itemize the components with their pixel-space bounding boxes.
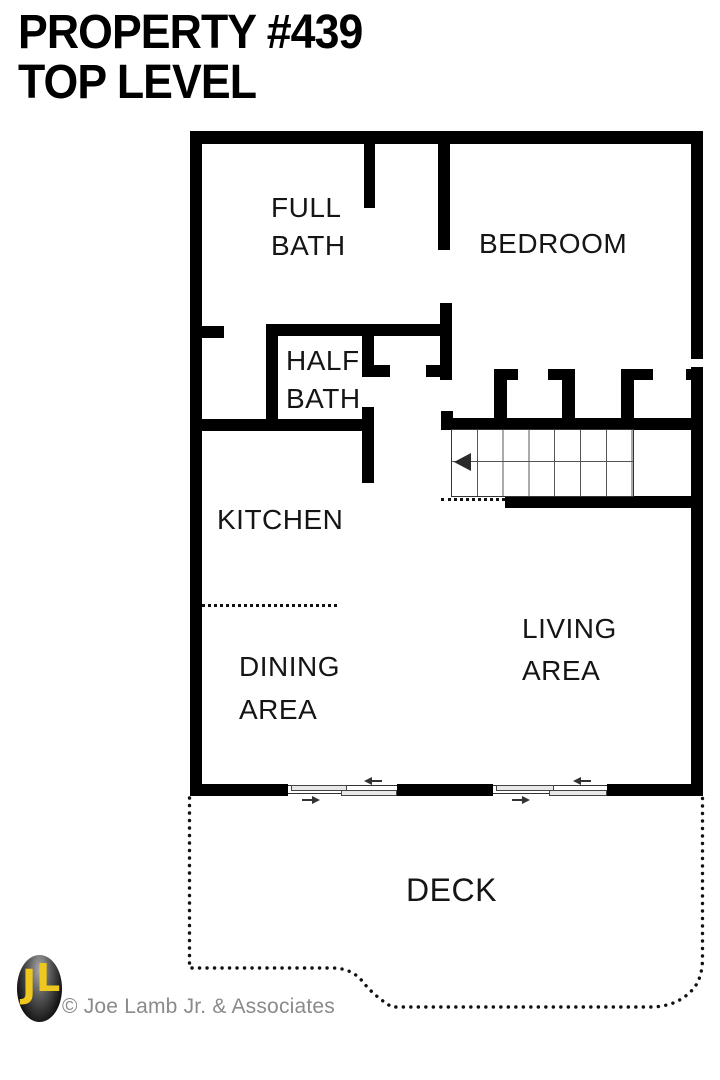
wall-bottom-right <box>607 784 703 796</box>
kitchen-dining-divider <box>202 604 337 607</box>
staircase <box>451 429 634 497</box>
room-label-bedroom: BEDROOM <box>479 225 627 263</box>
sliding-door-dining-panel-2 <box>341 790 397 796</box>
wall-kitchen-divider <box>362 407 374 483</box>
room-label-dining: DINING AREA <box>239 645 340 731</box>
room-label-living: LIVING AREA <box>522 608 617 692</box>
sliding-door-living-arrow-upper <box>577 780 591 782</box>
company-logo: J L <box>17 955 62 1022</box>
sliding-door-dining-arrow-upper <box>368 780 382 782</box>
room-label-living-line2: AREA <box>522 650 617 692</box>
room-label-kitchen-line1: KITCHEN <box>217 501 343 539</box>
room-label-living-line1: LIVING <box>522 608 617 650</box>
sliding-door-dining-panel-1 <box>291 785 347 791</box>
wall-halfbath-right-foot <box>362 365 390 377</box>
floorplan-page: PROPERTY #439 TOP LEVEL <box>0 0 720 1080</box>
sliding-door-living-panel-2 <box>549 790 607 796</box>
room-label-deck: DECK <box>406 871 497 909</box>
page-title-line2: TOP LEVEL <box>18 58 362 108</box>
room-label-bedroom-line1: BEDROOM <box>479 225 627 263</box>
stairs-dotted-line <box>441 498 505 501</box>
room-label-full-bath-line2: BATH <box>271 227 346 265</box>
wall-living-top <box>505 496 703 508</box>
wall-hall-stub-left <box>202 326 224 338</box>
closet-jamb-c-leg <box>621 369 634 418</box>
wall-left <box>190 131 202 796</box>
room-label-full-bath-line1: FULL <box>271 189 346 227</box>
wall-right-lower <box>691 367 703 796</box>
stairs-direction-arrow-icon <box>454 453 471 471</box>
wall-halfbath-bottom <box>190 419 373 431</box>
closet-jamb-d-cap <box>686 369 703 380</box>
wall-bottom-middle <box>397 784 493 796</box>
sliding-door-living-arrow-lower <box>512 799 526 801</box>
room-label-deck-line1: DECK <box>406 871 497 909</box>
room-label-dining-line2: AREA <box>239 688 340 731</box>
stairs-center-line <box>452 461 633 462</box>
sliding-door-living-panel-1 <box>496 785 554 791</box>
closet-jamb-a-leg <box>494 369 507 418</box>
wall-bedroom-upper <box>438 144 450 250</box>
room-label-full-bath: FULL BATH <box>271 189 346 265</box>
logo-letter-l: L <box>36 956 60 1000</box>
wall-closet-endcap <box>441 411 453 430</box>
sliding-door-dining-arrow-lower <box>302 799 316 801</box>
room-label-half-bath-line1: HALF <box>286 342 361 380</box>
wall-hall-top <box>266 324 452 336</box>
deck-outline <box>0 0 720 1080</box>
page-title: PROPERTY #439 TOP LEVEL <box>18 8 362 108</box>
closet-jamb-b-leg <box>562 369 575 418</box>
wall-top <box>190 131 703 144</box>
wall-hall-jamb-right <box>426 365 442 377</box>
room-label-kitchen: KITCHEN <box>217 501 343 539</box>
room-label-half-bath-line2: BATH <box>286 380 361 418</box>
logo-letter-j: J <box>22 962 36 1006</box>
wall-bottom-left <box>190 784 288 796</box>
page-title-line1: PROPERTY #439 <box>18 8 362 58</box>
wall-fullbath-stub <box>364 144 375 208</box>
wall-halfbath-left <box>266 336 278 431</box>
room-label-half-bath: HALF BATH <box>286 342 361 418</box>
room-label-dining-line1: DINING <box>239 645 340 688</box>
wall-right-upper <box>691 131 703 359</box>
copyright-text: © Joe Lamb Jr. & Associates <box>62 995 335 1019</box>
